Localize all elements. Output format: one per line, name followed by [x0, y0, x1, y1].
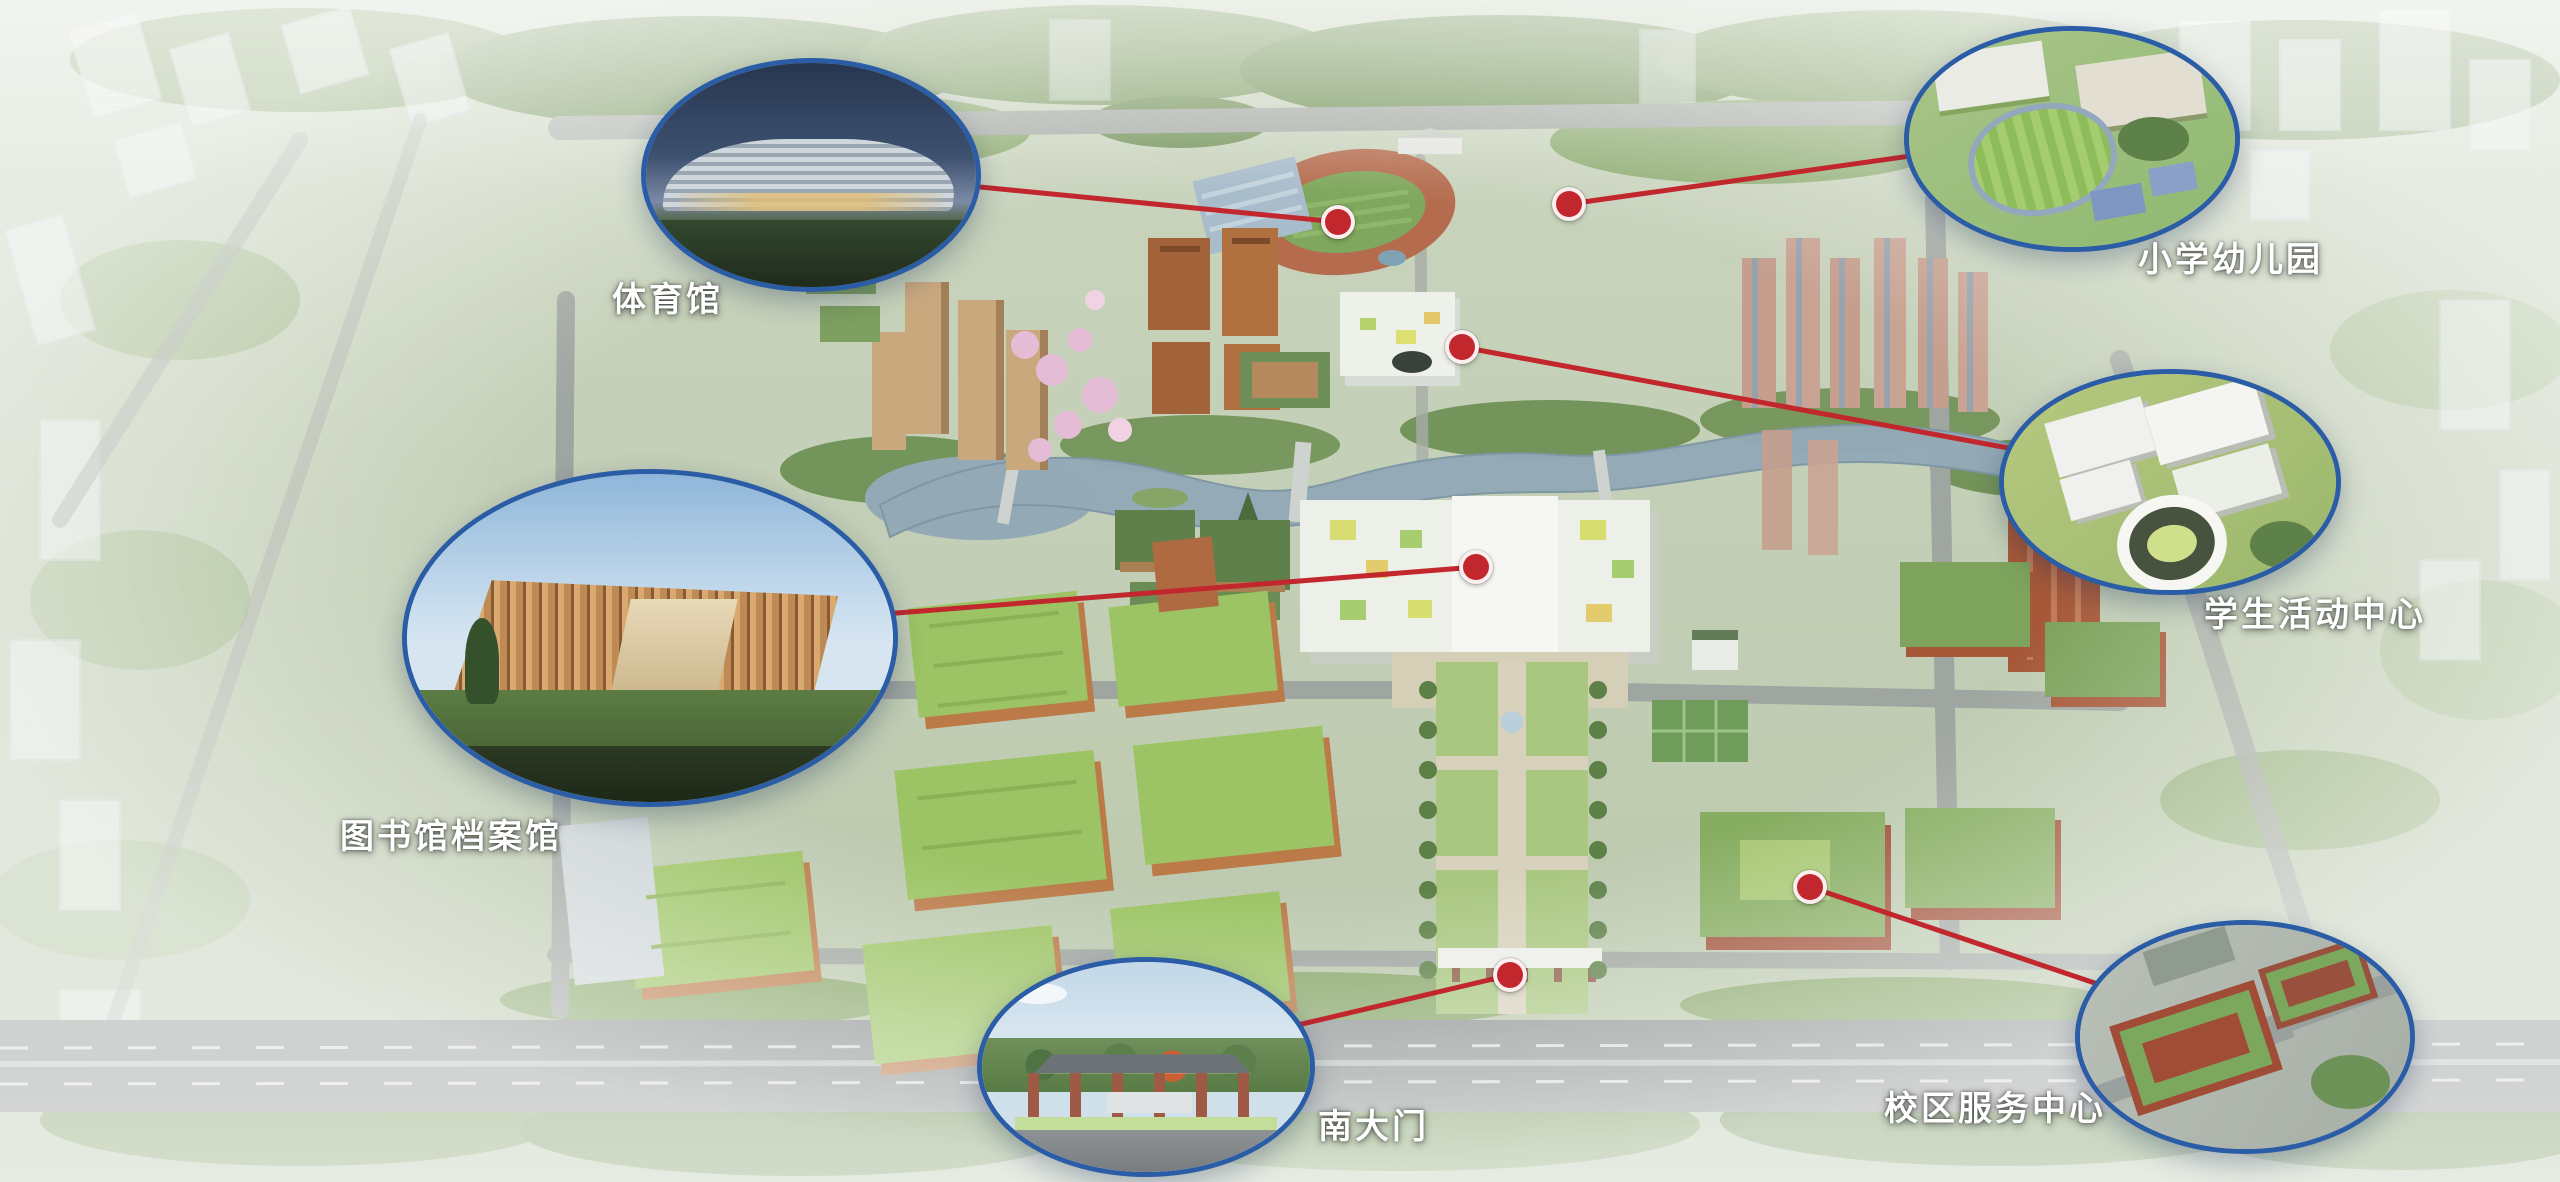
- callout-library-archives: [402, 469, 898, 807]
- label-library-archives: 图书馆档案馆: [340, 820, 562, 854]
- library-foreground: [407, 746, 893, 802]
- label-campus-service-center: 校区服务中心: [1884, 1092, 2106, 1126]
- callout-gymnasium: [641, 58, 981, 292]
- callout-primary-school-kindergarten: [1904, 26, 2240, 252]
- library-palm-tree: [465, 618, 499, 703]
- activity-trees: [2250, 521, 2316, 569]
- marker-dot-student-activity-center: [1445, 330, 1479, 364]
- marker-dot-library-archives: [1459, 550, 1493, 584]
- school-trees: [2118, 117, 2190, 160]
- gate-plaza: [982, 1130, 1310, 1172]
- marker-dot-south-gate: [1493, 958, 1527, 992]
- gym-lawn: [646, 220, 976, 287]
- label-gymnasium: 体育馆: [612, 283, 723, 317]
- callout-campus-service-center: [2075, 920, 2415, 1154]
- library-glass-atrium: [611, 599, 737, 691]
- marker-dot-campus-service-center: [1793, 870, 1827, 904]
- marker-dot-primary-school: [1552, 187, 1586, 221]
- label-student-activity-center: 学生活动中心: [2204, 598, 2426, 632]
- callout-student-activity-center: [1999, 369, 2341, 595]
- gate-cloud: [1008, 983, 1067, 1004]
- campus-masterplan-map: 体育馆 小学幼儿园 学生活动中心 图书馆档案馆 南大门 校区服务中心: [0, 0, 2560, 1182]
- label-south-gate: 南大门: [1318, 1110, 1429, 1144]
- service-trees: [2311, 1055, 2390, 1109]
- gym-glow-windows: [679, 193, 943, 211]
- label-primary-school: 小学幼儿园: [2138, 243, 2323, 277]
- marker-dot-gymnasium: [1321, 205, 1355, 239]
- callout-south-gate: [977, 957, 1315, 1177]
- gate-canopy: [1034, 1054, 1250, 1073]
- gate-name-wall: [1107, 1092, 1192, 1113]
